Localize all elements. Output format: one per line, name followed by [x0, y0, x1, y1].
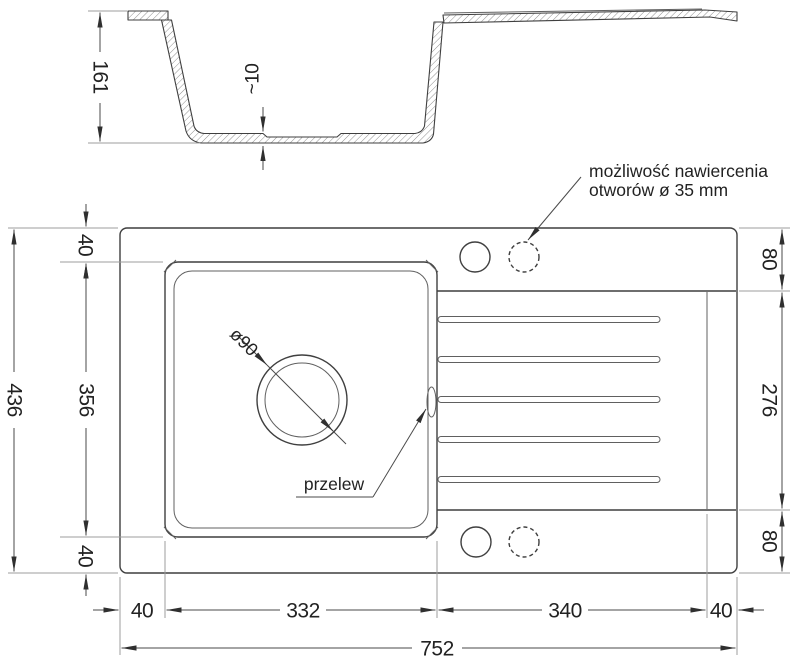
dim-40-top-value: 40	[74, 234, 97, 256]
faucet-hole-top	[460, 242, 490, 272]
overflow-leader-line	[373, 409, 426, 497]
dim-40-right-value: 40	[710, 600, 732, 623]
drill-note-line1: możliwość nawiercenia	[589, 161, 768, 181]
dim-332-value: 332	[286, 600, 320, 623]
dim-356-value: 356	[75, 383, 98, 417]
drain-diameter-tail	[333, 431, 346, 444]
drain-groove	[438, 437, 660, 443]
technical-drawing: 161 ~10	[0, 0, 800, 668]
section-bowl-wall	[162, 20, 444, 143]
dim-340-value: 340	[548, 600, 582, 623]
overflow-label: przelew	[304, 474, 365, 494]
drain-groove	[438, 357, 660, 363]
drain-groove	[438, 397, 660, 403]
drain-diameter-line-lower	[320, 418, 333, 431]
drill-option-hole-top	[509, 242, 539, 272]
bowl-corner-facet-tl	[164, 260, 176, 272]
section-left-flange	[128, 11, 168, 20]
section-view: 161 ~10	[88, 9, 737, 170]
dim-10-value: ~10	[243, 64, 264, 95]
dim-276-value: 276	[758, 383, 781, 417]
plan-view: ø90 przelew możliwość nawiercenia otworó…	[120, 161, 768, 573]
drawing-canvas: 161 ~10	[0, 0, 800, 668]
dim-80-top-value: 80	[758, 248, 781, 270]
dim-40-left-value: 40	[131, 600, 153, 623]
dim-40-bottom-value: 40	[74, 545, 97, 567]
faucet-hole-bottom	[461, 527, 491, 557]
dim-161-value: 161	[89, 60, 112, 94]
dim-80-bottom-value: 80	[758, 530, 781, 552]
bowl-corner-facet-bl	[164, 527, 176, 539]
drain-groove	[438, 317, 660, 323]
drain-groove	[438, 477, 660, 483]
drill-note-line2: otworów ø 35 mm	[589, 180, 728, 200]
bowl-corner-facet-tr	[426, 260, 438, 272]
bowl-corner-facet-br	[426, 527, 438, 539]
drill-option-hole-bottom	[509, 527, 539, 557]
drill-note-leader	[528, 177, 581, 240]
dim-752-value: 752	[420, 638, 454, 661]
left-dimensions: 436 40 356 40	[3, 204, 164, 596]
right-dimensions: 80 276 80	[739, 228, 790, 573]
dim-436-value: 436	[3, 383, 26, 417]
